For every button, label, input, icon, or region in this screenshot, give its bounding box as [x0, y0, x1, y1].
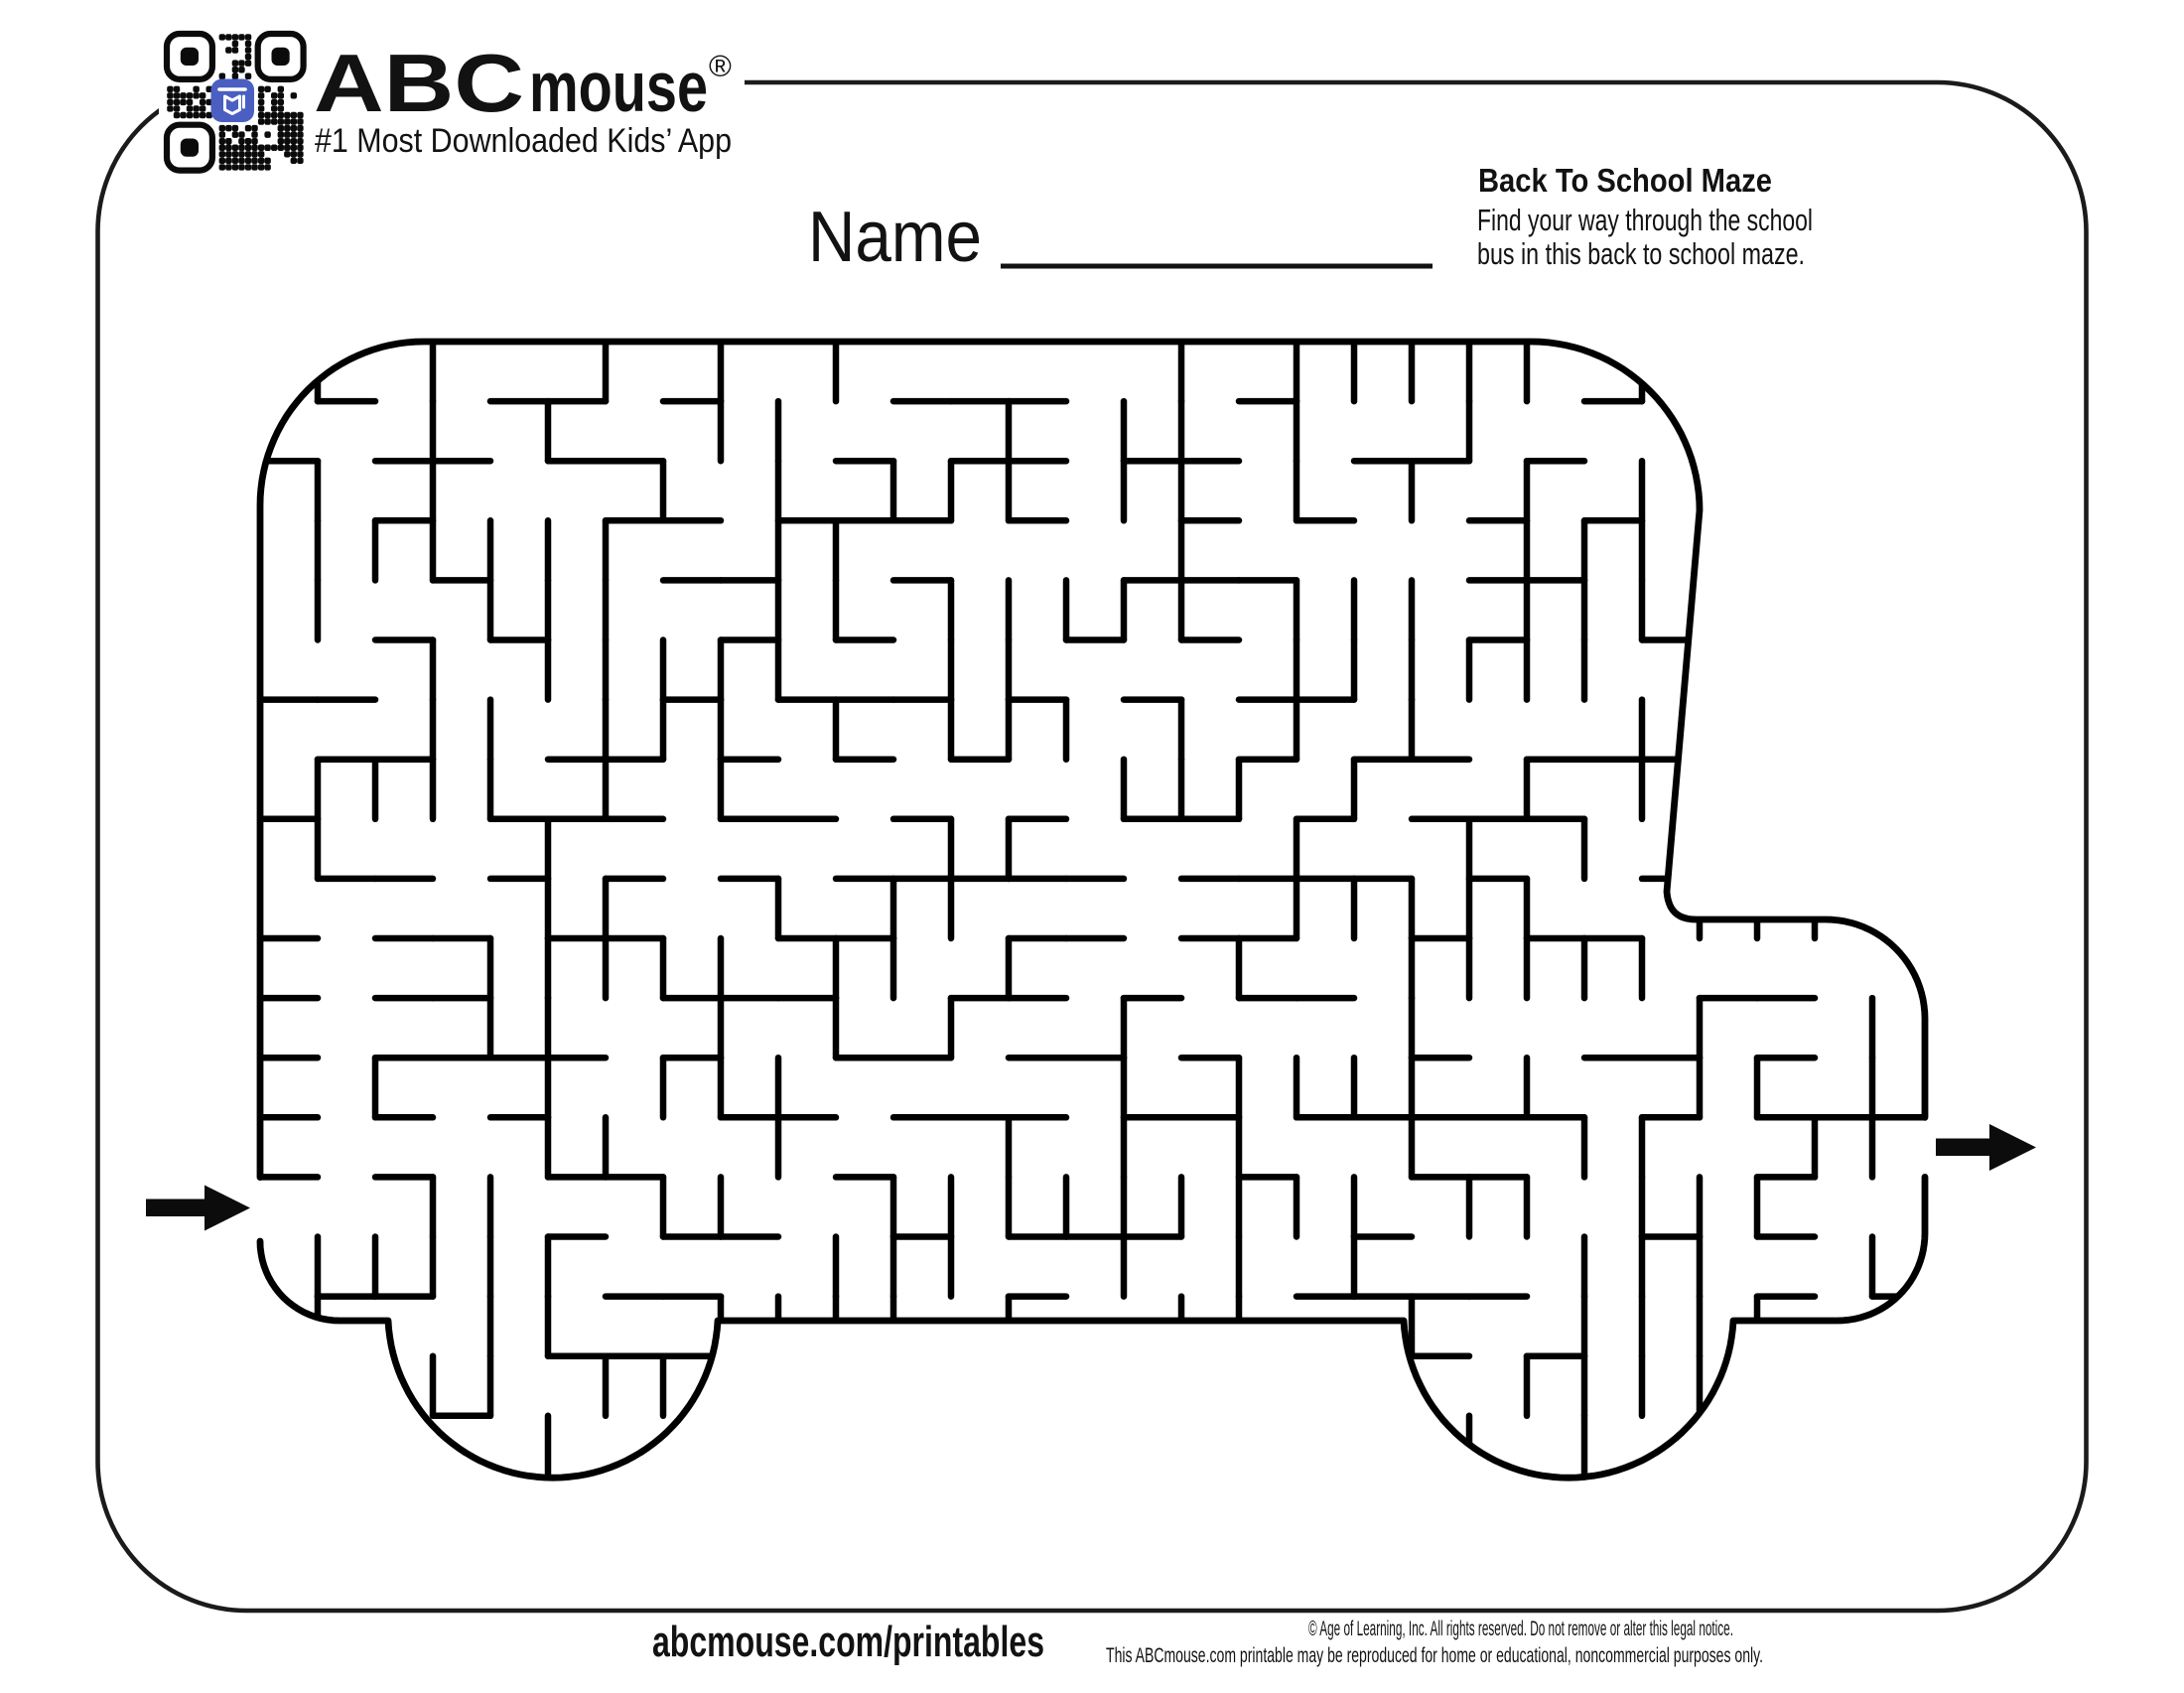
svg-text:Back To School Maze: Back To School Maze — [1478, 162, 1772, 199]
svg-text:This ABCmouse.com printable ma: This ABCmouse.com printable may be repro… — [1106, 1643, 1763, 1667]
svg-text:bus in this back to school maz: bus in this back to school maze. — [1477, 236, 1805, 271]
svg-text:Find your way through the scho: Find your way through the school — [1477, 203, 1813, 237]
svg-text:#1 Most Downloaded Kids’ App: #1 Most Downloaded Kids’ App — [315, 122, 732, 160]
svg-text:© Age of Learning, Inc. All ri: © Age of Learning, Inc. All rights reser… — [1308, 1617, 1733, 1640]
svg-text:abcmouse.com/printables: abcmouse.com/printables — [652, 1618, 1044, 1666]
svg-text:Name: Name — [808, 198, 982, 277]
svg-text:mouse: mouse — [529, 49, 708, 127]
svg-text:ABC: ABC — [314, 37, 524, 129]
svg-text:®: ® — [709, 49, 732, 83]
